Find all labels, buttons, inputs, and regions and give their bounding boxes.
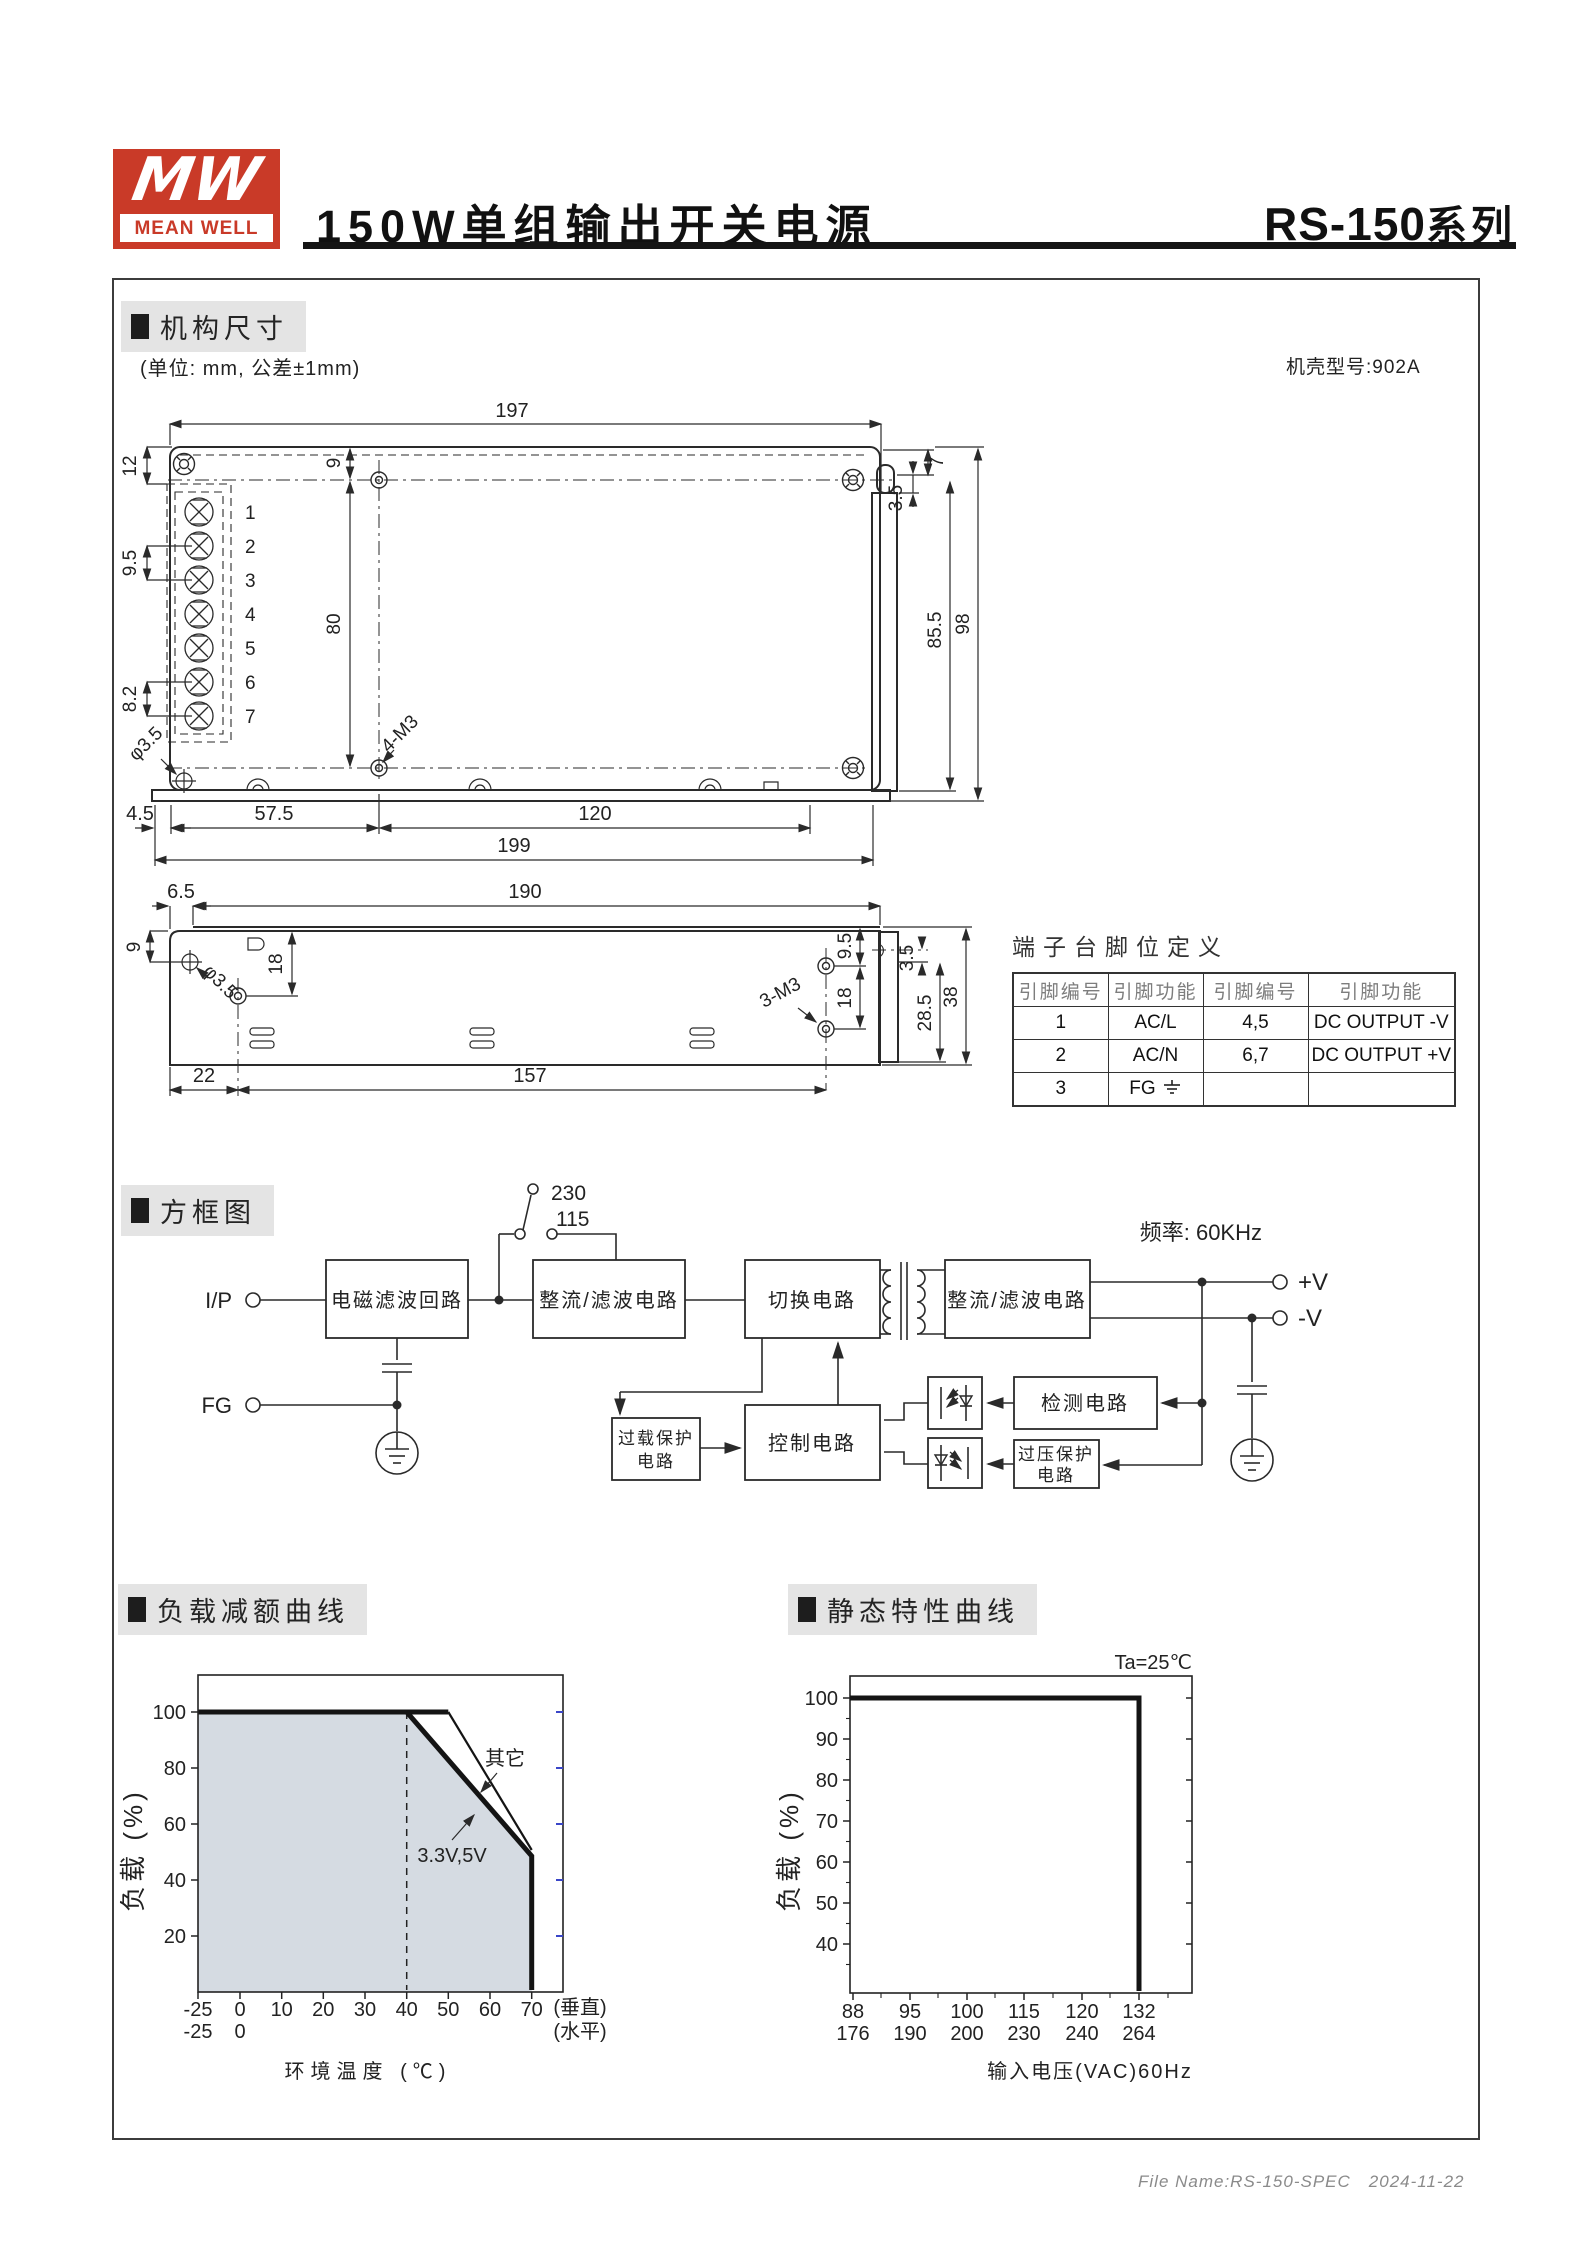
x-tick-label: 30 <box>354 1999 376 2021</box>
block-label: 整流/滤波电路 <box>947 1289 1087 1312</box>
dim-label: 8.2 <box>120 686 141 712</box>
block-label: 过载保护 <box>618 1429 694 1448</box>
x-tick-label-row2: 190 <box>893 2023 926 2045</box>
x-tick-label: 40 <box>396 1999 418 2021</box>
output-label: -V <box>1298 1305 1322 1332</box>
x-tick-label: 70 <box>521 1999 543 2021</box>
terminal-number: 4 <box>245 605 256 626</box>
y-tick-label: 80 <box>164 1758 186 1780</box>
x-tick-label-row2: 0 <box>234 2021 245 2043</box>
x-tick-label: 60 <box>479 1999 501 2021</box>
switch-label: 115 <box>556 1208 589 1231</box>
block-diagram: 频率: 60KHz I/P FG 电磁滤波回路 230 115 整流/滤波电路 <box>201 1182 1328 1488</box>
file-name: File Name:RS-150-SPEC <box>1138 2172 1351 2191</box>
series-label: 其它 <box>485 1747 525 1770</box>
dim-label: 22 <box>193 1065 215 1087</box>
block-label: 整流/滤波电路 <box>539 1289 679 1312</box>
terminal-number: 2 <box>245 537 256 558</box>
y-tick-label: 40 <box>816 1934 838 1956</box>
output-label: +V <box>1298 1269 1328 1296</box>
dim-label: 85.5 <box>925 612 946 649</box>
series-label: 3.3V,5V <box>417 1845 487 1867</box>
x-tick-label: 132 <box>1122 2001 1155 2023</box>
y-tick-label: 70 <box>816 1811 838 1833</box>
static-chart: Ta=25℃ 100 90 80 70 60 50 <box>774 1652 1193 2083</box>
hole-callout: 4-M3 <box>377 711 422 756</box>
y-tick-label: 60 <box>164 1814 186 1836</box>
x-tick-label: 0 <box>234 1999 245 2021</box>
dim-label: 6.5 <box>167 881 195 903</box>
dim-label: 57.5 <box>255 803 294 825</box>
dim-label: 7 <box>927 457 948 468</box>
frequency-note: 频率: 60KHz <box>1140 1220 1262 1245</box>
right-axis-ticks <box>556 1712 563 1936</box>
load-line <box>850 1698 1139 1991</box>
dim-label: 98 <box>953 613 974 634</box>
dim-label: 80 <box>324 613 345 634</box>
dim-label: 3.5 <box>897 945 918 971</box>
ta-annotation: Ta=25℃ <box>1114 1652 1192 1674</box>
dim-label: 197 <box>495 400 528 422</box>
switch-label: 230 <box>551 1182 586 1205</box>
x-tick-label: 100 <box>950 2001 983 2023</box>
y-tick-label: 20 <box>164 1926 186 1948</box>
hole-callout: 3-M3 <box>756 974 804 1013</box>
input-label: I/P <box>205 1288 232 1313</box>
dim-label: 38 <box>941 986 962 1007</box>
block-label: 检测电路 <box>1041 1392 1129 1415</box>
optocoupler-icon <box>928 1377 982 1429</box>
block-label: 切换电路 <box>768 1289 856 1312</box>
x-tick-label: 10 <box>271 1999 293 2021</box>
top-view-drawing: 1 2 3 4 5 6 7 197 12 9.5 8.2 9 80 φ3.5 4… <box>120 400 984 866</box>
y-tick-label: 50 <box>816 1893 838 1915</box>
terminal-number: 3 <box>245 571 256 592</box>
technical-drawings-layer: 1 2 3 4 5 6 7 197 12 9.5 8.2 9 80 φ3.5 4… <box>0 0 1587 2245</box>
optocoupler-icon <box>928 1438 982 1488</box>
footer-filename: File Name:RS-150-SPEC2024-11-22 <box>1138 2172 1482 2192</box>
block-label: 电路 <box>1037 1466 1075 1485</box>
derating-chart: 100 80 60 40 20 -25 0 10 20 30 40 50 60 … <box>118 1675 607 2083</box>
y-tick-label: 90 <box>816 1729 838 1751</box>
block-label: 电路 <box>637 1452 675 1471</box>
x-tick-label: 20 <box>312 1999 334 2021</box>
x-axis-title: 环境温度 (℃) <box>285 2060 452 2083</box>
dim-label: 18 <box>266 953 287 974</box>
axis-note: (水平) <box>553 2020 606 2043</box>
terminal-number: 5 <box>245 639 256 660</box>
dim-label: 9 <box>124 942 145 953</box>
block-label: 电磁滤波回路 <box>331 1289 463 1312</box>
y-tick-label: 60 <box>816 1852 838 1874</box>
x-tick-label: -25 <box>184 1999 213 2021</box>
axis-note: (垂直) <box>553 1996 606 2019</box>
dim-label: 4.5 <box>126 803 154 825</box>
x-tick-label: 88 <box>842 2001 864 2023</box>
y-tick-label: 100 <box>153 1702 186 1724</box>
y-tick-label: 40 <box>164 1870 186 1892</box>
x-tick-label: 95 <box>899 2001 921 2023</box>
terminal-number: 1 <box>245 503 256 524</box>
side-view-drawing: 6.5 190 9 φ3.5 18 22 157 3-M3 9.5 18 3.5… <box>124 881 972 1096</box>
x-tick-label-row2: 264 <box>1122 2023 1155 2045</box>
hole-callout: φ3.5 <box>125 723 167 765</box>
terminal-number: 6 <box>245 673 256 694</box>
x-axis-title: 输入电压(VAC)60Hz <box>987 2060 1193 2083</box>
datasheet-page: { "colors": {"accent_red": "#c93a28", "s… <box>0 0 1587 2245</box>
dim-label: 120 <box>578 803 611 825</box>
y-axis-title: 负载 (%) <box>118 1788 148 1912</box>
block-label: 过压保护 <box>1018 1445 1094 1464</box>
dim-label: 12 <box>120 455 141 476</box>
x-tick-label-row2: -25 <box>184 2021 213 2043</box>
dim-label: 9.5 <box>835 933 856 959</box>
y-axis-title: 负载 (%) <box>774 1788 804 1912</box>
dim-label: 18 <box>835 987 856 1008</box>
dim-label: 157 <box>513 1065 546 1087</box>
dim-label: 199 <box>497 835 530 857</box>
file-date: 2024-11-22 <box>1369 2172 1465 2191</box>
fg-label: FG <box>201 1393 232 1418</box>
x-tick-label-row2: 240 <box>1065 2023 1098 2045</box>
dim-label: 3.5 <box>886 485 907 511</box>
dim-label: 9.5 <box>120 550 141 576</box>
y-tick-label: 100 <box>805 1688 838 1710</box>
x-tick-label: 115 <box>1008 2001 1040 2023</box>
terminal-symbols <box>185 498 213 730</box>
block-label: 控制电路 <box>768 1432 856 1455</box>
dim-label: 9 <box>324 458 345 469</box>
x-tick-label: 50 <box>437 1999 459 2021</box>
x-tick-label-row2: 200 <box>950 2023 983 2045</box>
terminal-number: 7 <box>245 707 256 728</box>
x-tick-label-row2: 230 <box>1007 2023 1040 2045</box>
dim-label: 190 <box>508 881 541 903</box>
x-tick-label-row2: 176 <box>836 2023 869 2045</box>
dim-label: 28.5 <box>915 995 936 1032</box>
x-tick-label: 120 <box>1065 2001 1098 2023</box>
y-tick-label: 80 <box>816 1770 838 1792</box>
